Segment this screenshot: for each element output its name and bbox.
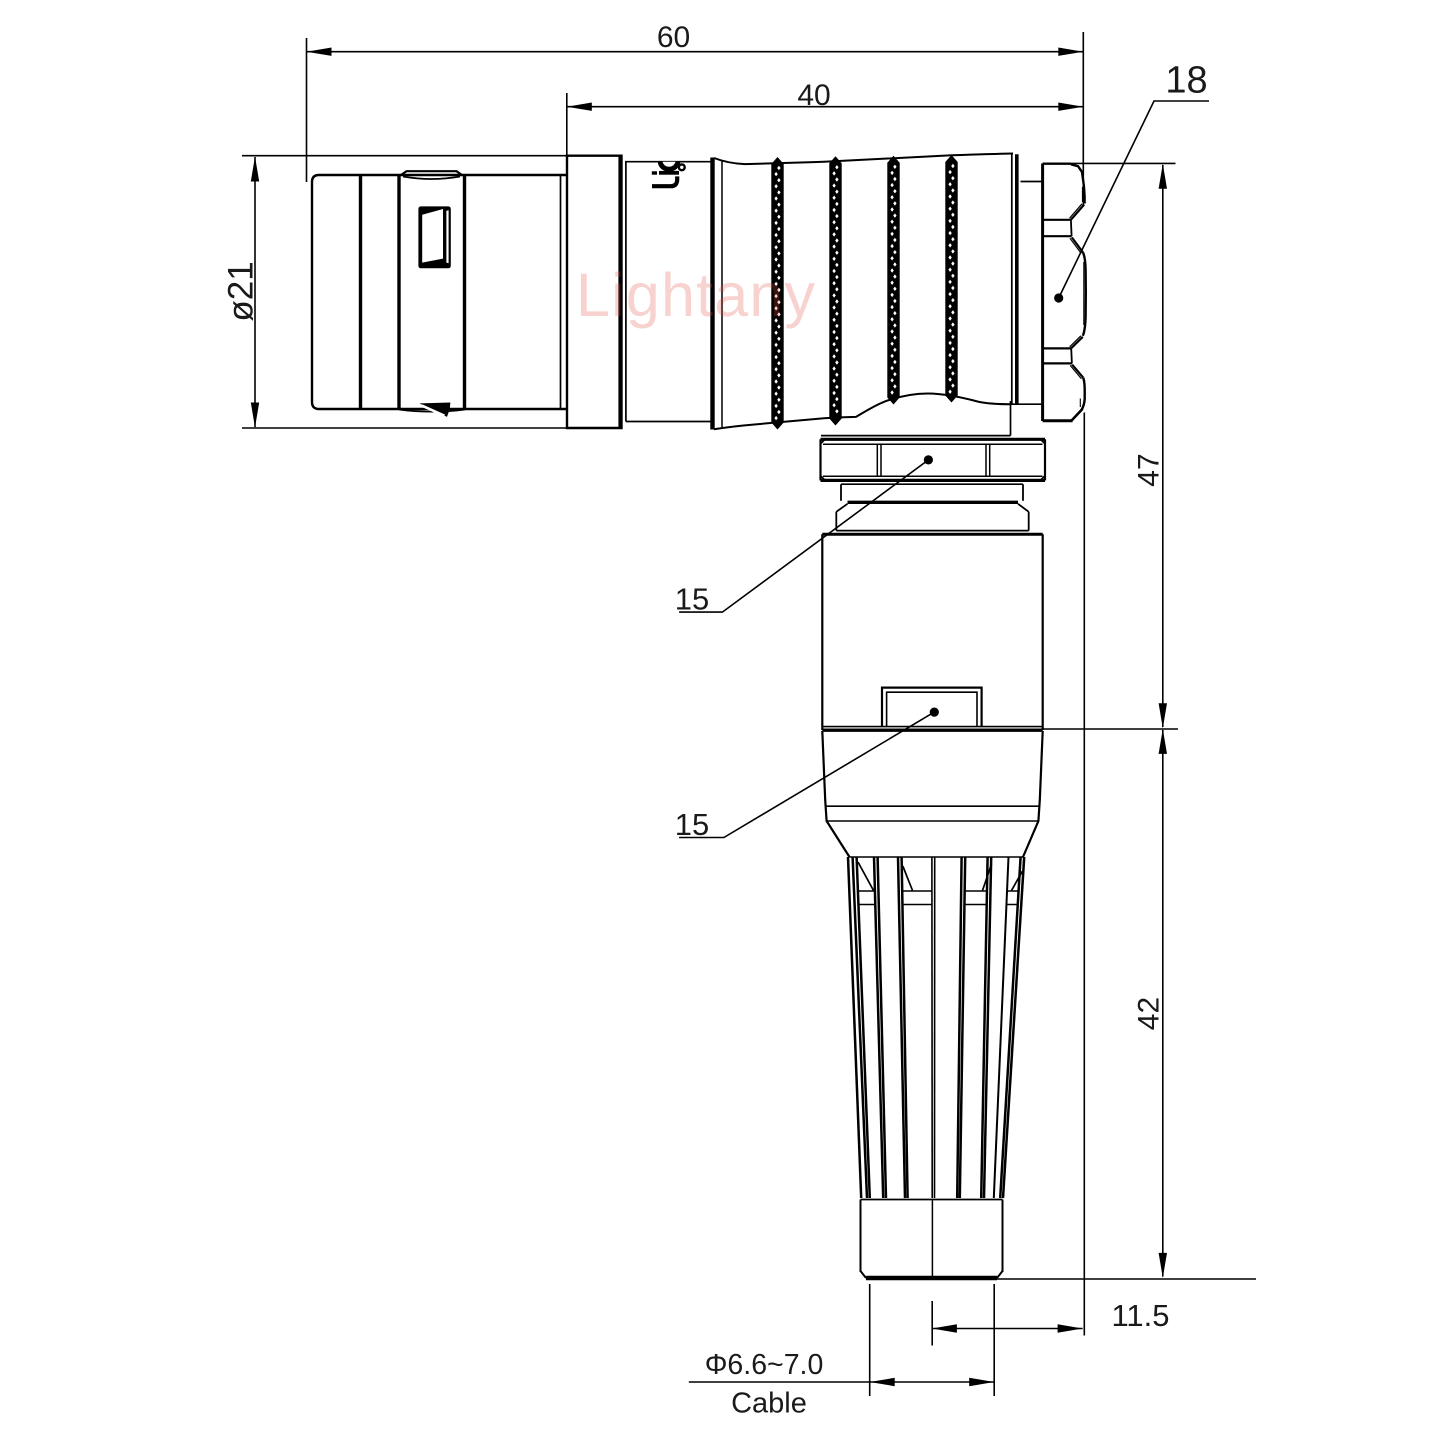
svg-text:47: 47	[1133, 453, 1166, 486]
svg-text:40: 40	[797, 79, 830, 112]
svg-text:Φ6.6~7.0: Φ6.6~7.0	[705, 1349, 824, 1381]
svg-text:Lightany: Lightany	[576, 261, 816, 329]
svg-text:Cable: Cable	[731, 1388, 807, 1420]
svg-text:18: 18	[1165, 60, 1207, 102]
svg-text:11.5: 11.5	[1111, 1298, 1169, 1333]
svg-text:15: 15	[675, 807, 709, 842]
svg-text:60: 60	[657, 21, 690, 54]
svg-text:42: 42	[1133, 997, 1166, 1030]
svg-text:15: 15	[675, 582, 709, 617]
svg-text:ø21: ø21	[222, 261, 261, 321]
